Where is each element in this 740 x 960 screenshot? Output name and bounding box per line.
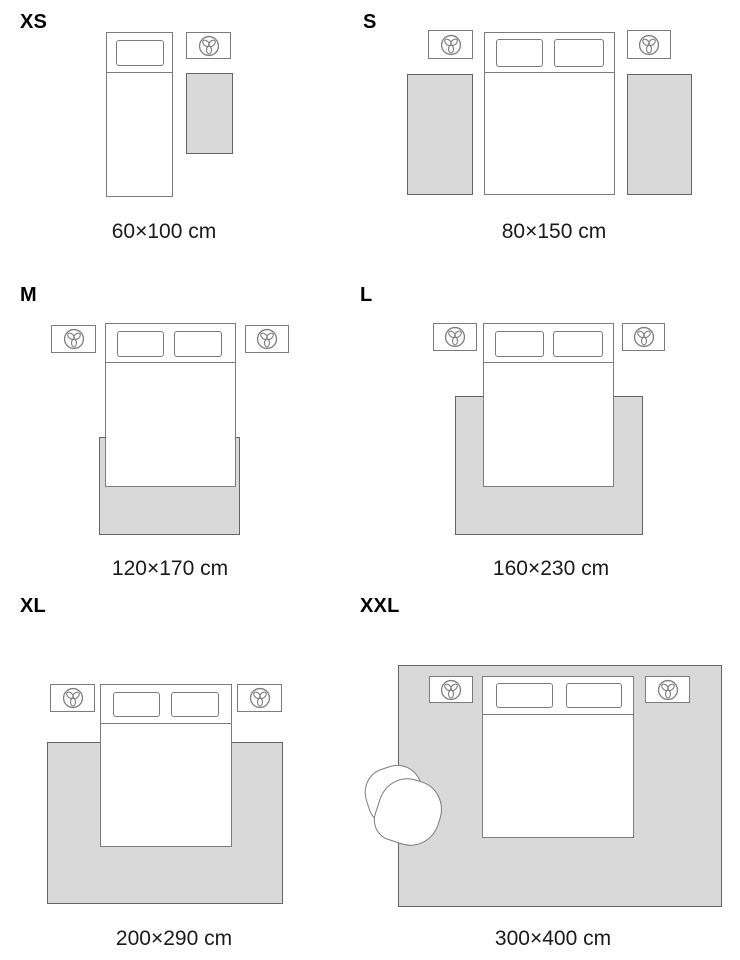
- nightstand: [51, 325, 96, 353]
- size-label-m: M: [20, 285, 37, 305]
- plant-icon: [62, 687, 84, 709]
- nightstand: [645, 676, 690, 703]
- double-bed-top-view: [482, 676, 634, 838]
- rug-dimensions-xs: 60×100 cm: [112, 221, 217, 242]
- rug-xs: [186, 73, 233, 154]
- pillow: [496, 39, 543, 67]
- nightstand: [433, 323, 477, 351]
- plant-icon: [249, 687, 271, 709]
- nightstand: [237, 684, 282, 712]
- pillow: [495, 331, 544, 357]
- double-bed-top-view: [483, 323, 614, 487]
- pillow: [496, 683, 553, 708]
- plant-icon: [256, 328, 278, 350]
- nightstand: [186, 32, 231, 59]
- nightstand: [50, 684, 95, 712]
- single-bed-top-view: [106, 32, 173, 197]
- plant-icon: [657, 679, 679, 701]
- plant-icon: [638, 34, 660, 56]
- nightstand: [622, 323, 665, 351]
- double-bed-top-view: [484, 32, 615, 195]
- pillow: [113, 692, 160, 717]
- pillow: [174, 331, 222, 357]
- nightstand: [428, 30, 473, 59]
- nightstand: [245, 325, 289, 353]
- rug-s-right-runner: [627, 74, 692, 195]
- double-bed-top-view: [105, 323, 236, 487]
- rug-dimensions-m: 120×170 cm: [112, 558, 228, 579]
- rug-s-left-runner: [407, 74, 473, 195]
- pillow: [171, 692, 219, 717]
- pillow: [553, 331, 603, 357]
- size-label-xl: XL: [20, 596, 46, 616]
- rug-size-guide: XS 60×100 cm S: [0, 0, 740, 960]
- plant-icon: [444, 326, 466, 348]
- plant-icon: [198, 35, 220, 57]
- rug-dimensions-s: 80×150 cm: [502, 221, 607, 242]
- pillow: [554, 39, 604, 67]
- pillow: [566, 683, 622, 708]
- rug-dimensions-xxl: 300×400 cm: [495, 928, 611, 949]
- size-label-xs: XS: [20, 12, 47, 32]
- nightstand: [429, 676, 473, 703]
- double-bed-top-view: [100, 684, 232, 847]
- plant-icon: [633, 326, 655, 348]
- plant-icon: [440, 679, 462, 701]
- size-label-s: S: [363, 12, 377, 32]
- pillow: [117, 331, 164, 357]
- rug-dimensions-l: 160×230 cm: [493, 558, 609, 579]
- plant-icon: [63, 328, 85, 350]
- pillow: [116, 40, 164, 66]
- rug-dimensions-xl: 200×290 cm: [116, 928, 232, 949]
- nightstand: [627, 30, 671, 59]
- size-label-xxl: XXL: [360, 596, 400, 616]
- size-label-l: L: [360, 285, 372, 305]
- plant-icon: [440, 34, 462, 56]
